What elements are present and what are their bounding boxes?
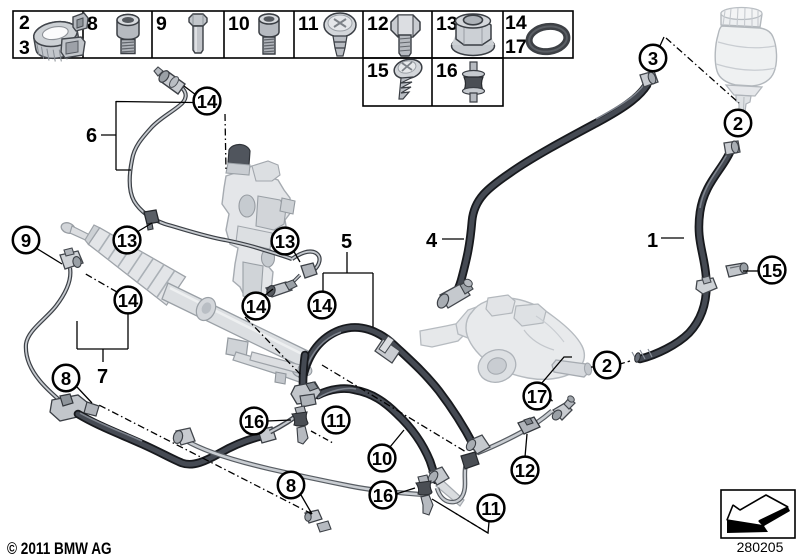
svg-text:13: 13 [436,13,458,35]
svg-text:13: 13 [275,231,296,252]
svg-text:5: 5 [341,231,352,253]
svg-text:1: 1 [647,230,658,252]
svg-text:12: 12 [367,13,389,35]
svg-text:2: 2 [733,113,743,134]
svg-text:11: 11 [326,410,346,431]
svg-text:17: 17 [527,386,548,407]
svg-text:16: 16 [373,485,394,506]
svg-text:14: 14 [197,91,218,112]
svg-text:11: 11 [481,498,501,519]
svg-text:2: 2 [19,12,30,34]
svg-text:12: 12 [515,460,536,481]
svg-text:14: 14 [312,295,333,316]
svg-text:9: 9 [21,230,31,251]
svg-text:4: 4 [426,230,438,252]
svg-text:15: 15 [762,260,783,281]
svg-text:8: 8 [286,475,296,496]
svg-text:7: 7 [97,366,108,388]
svg-text:6: 6 [86,125,97,147]
svg-text:13: 13 [117,230,138,251]
svg-text:3: 3 [19,37,30,59]
svg-text:10: 10 [228,13,250,35]
svg-text:280205: 280205 [737,539,784,555]
svg-text:2: 2 [602,355,612,376]
svg-text:© 2011 BMW AG: © 2011 BMW AG [7,540,112,559]
svg-text:8: 8 [87,13,98,35]
svg-text:9: 9 [156,13,167,35]
svg-text:3: 3 [648,48,658,69]
svg-text:15: 15 [367,60,389,82]
svg-text:14: 14 [246,296,267,317]
svg-text:11: 11 [298,13,319,35]
svg-text:17: 17 [505,36,527,58]
svg-text:14: 14 [505,12,527,34]
svg-text:14: 14 [118,290,139,311]
svg-text:16: 16 [244,411,265,432]
svg-text:10: 10 [372,448,393,469]
svg-text:16: 16 [436,60,458,82]
svg-text:8: 8 [61,368,71,389]
